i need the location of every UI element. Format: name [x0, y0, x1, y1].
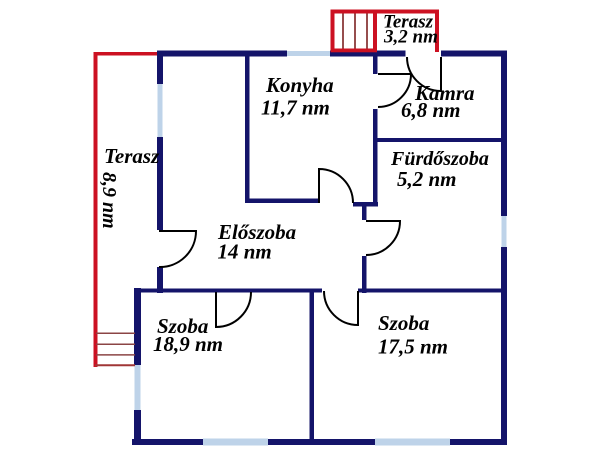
svg-text:Konyha: Konyha: [265, 73, 334, 97]
svg-text:18,9 nm: 18,9 nm: [153, 332, 223, 356]
svg-text:Szoba: Szoba: [378, 311, 429, 335]
svg-text:6,8 nm: 6,8 nm: [401, 98, 461, 122]
svg-text:5,2 nm: 5,2 nm: [397, 167, 457, 191]
svg-text:8,9 nm: 8,9 nm: [98, 172, 120, 229]
svg-text:17,5 nm: 17,5 nm: [378, 335, 448, 359]
svg-text:14 nm: 14 nm: [218, 240, 272, 264]
svg-text:3,2 nm: 3,2 nm: [383, 27, 438, 48]
svg-text:Terasz: Terasz: [104, 144, 160, 168]
svg-text:11,7 nm: 11,7 nm: [261, 96, 330, 120]
